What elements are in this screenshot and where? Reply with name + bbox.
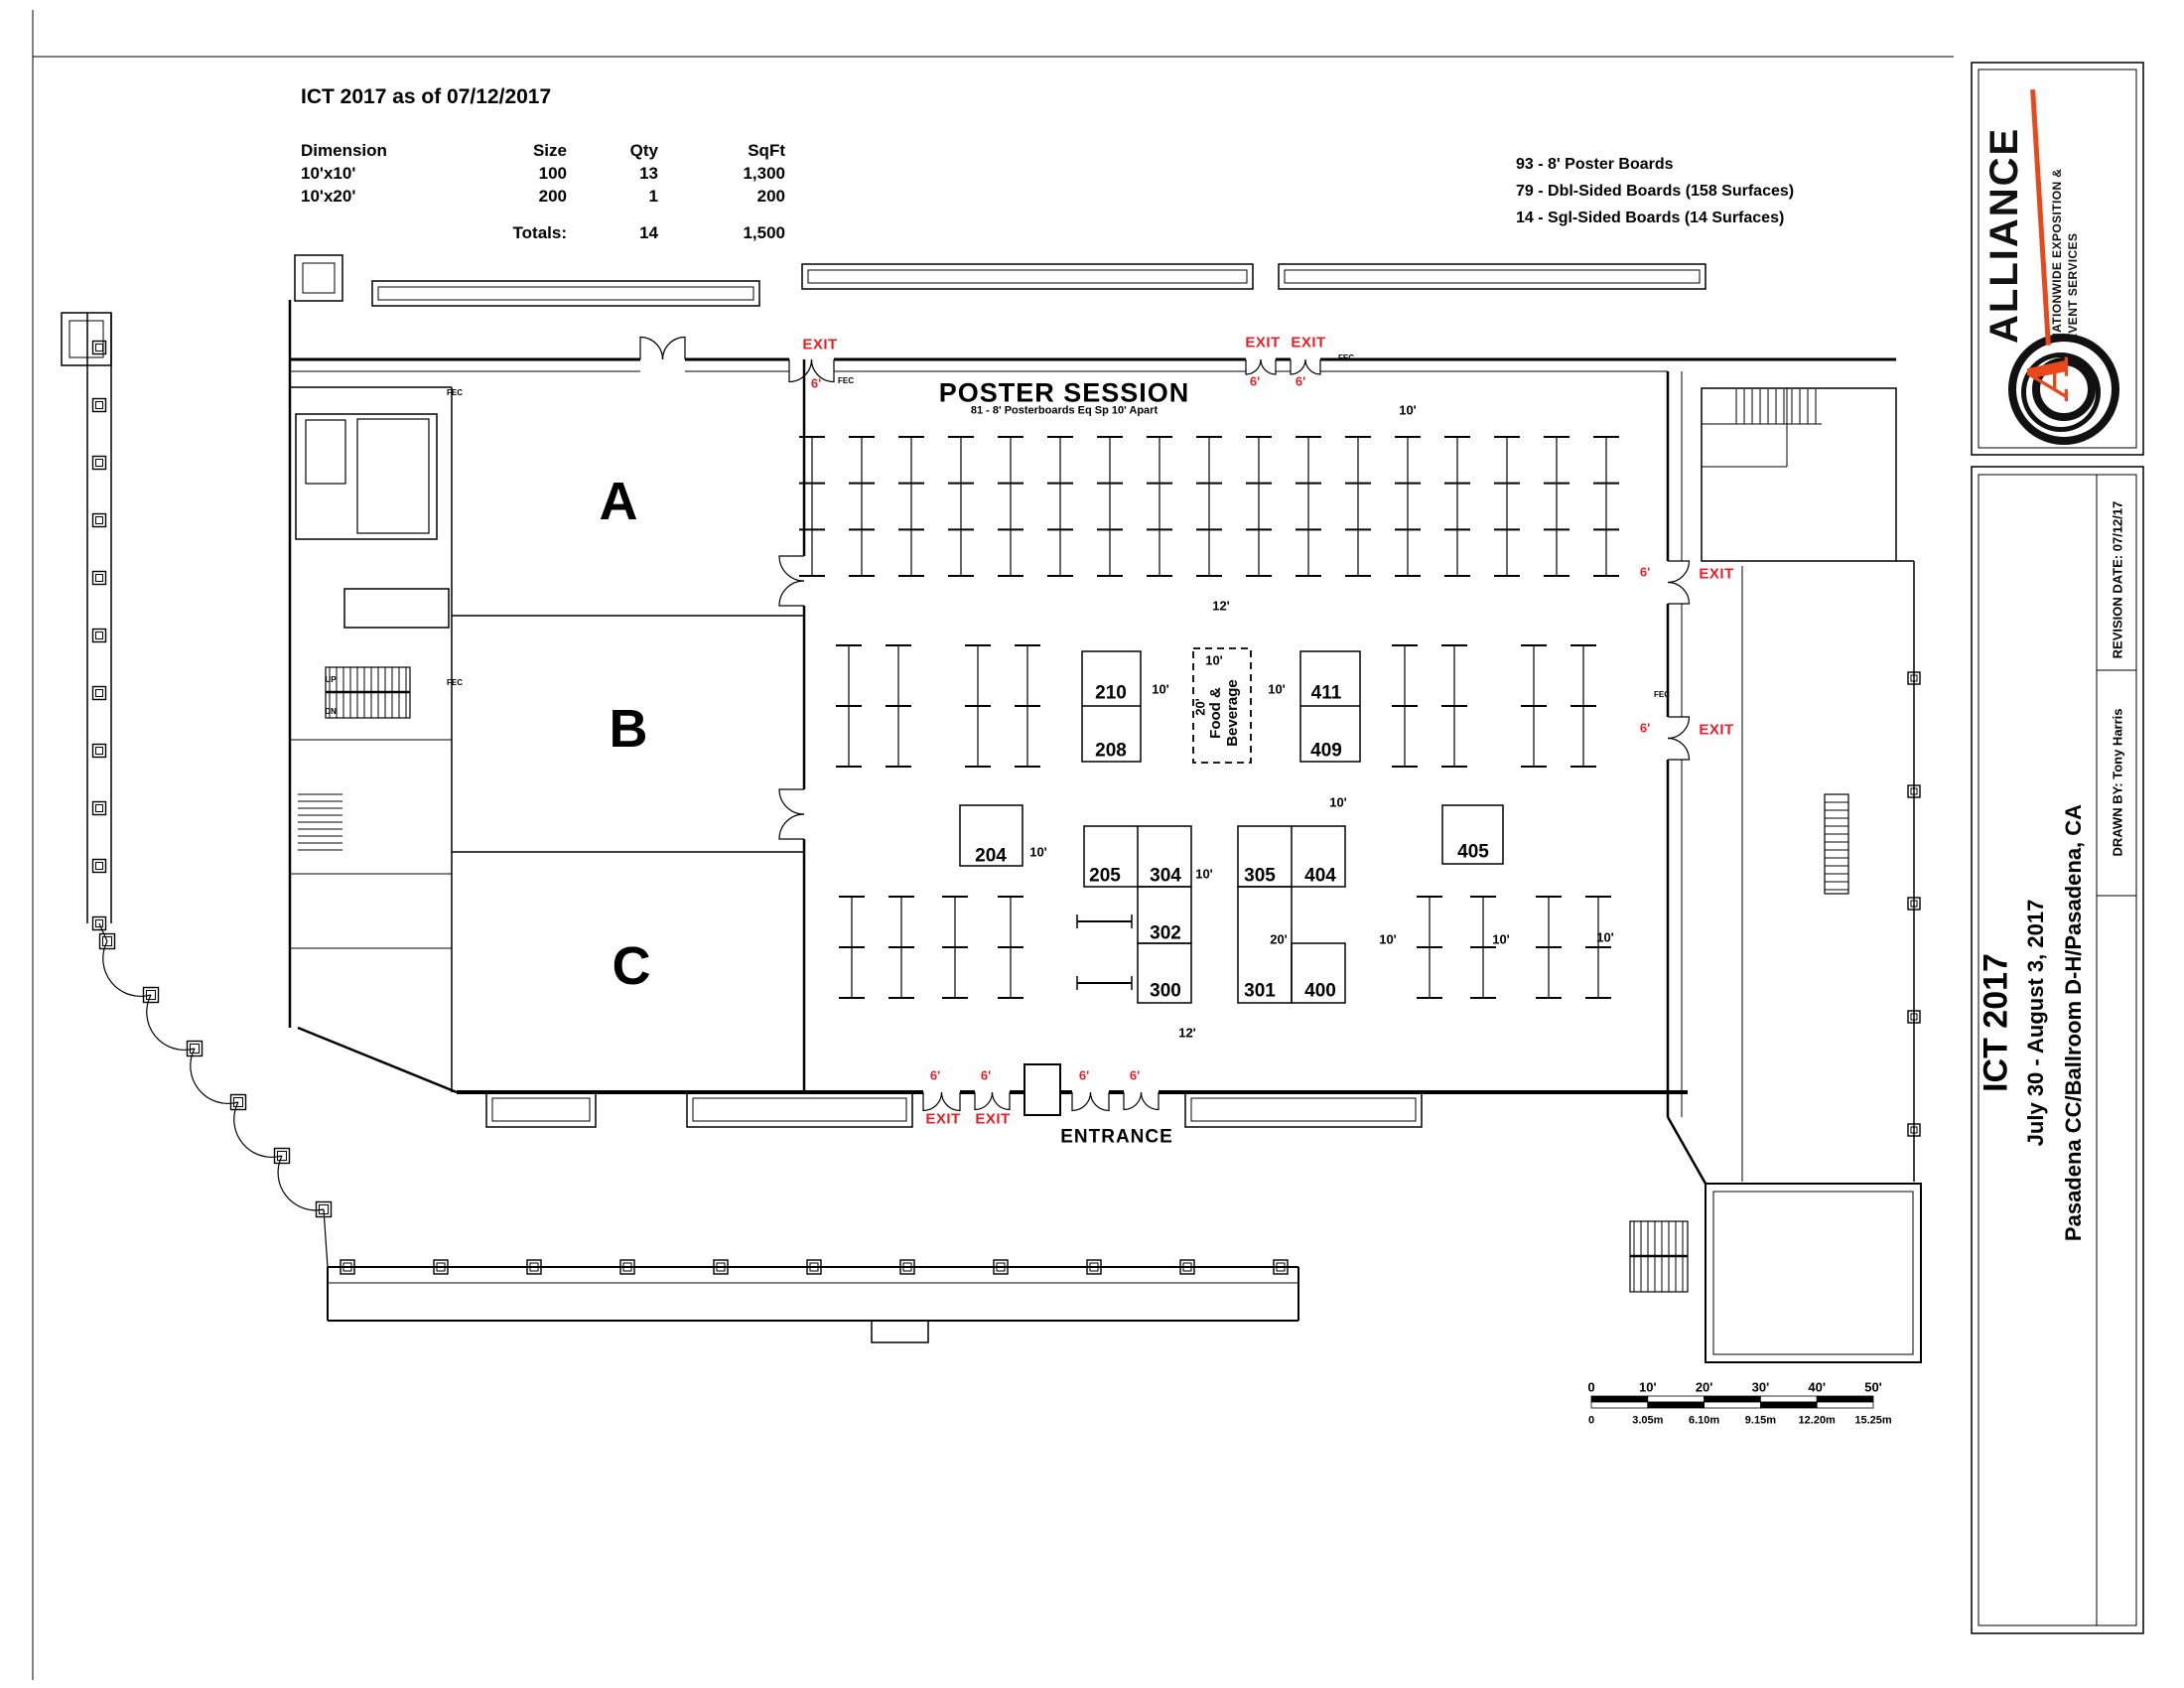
fec-label: FEC (447, 389, 463, 397)
booth-208-label: 208 (1095, 742, 1127, 761)
plan-label-layer: POSTER SESSION81 - 8' Posterboards Eq Sp… (0, 0, 2184, 1688)
booth-404-label: 404 (1304, 867, 1336, 886)
scalebar-feet-label: 10' (1639, 1381, 1657, 1394)
food-beverage-area-label: Food &Beverage (1207, 679, 1242, 747)
stair-up-label: UP (325, 676, 336, 684)
dim-6ft-label: 6' (981, 1069, 991, 1082)
scalebar-feet-label: 50' (1864, 1381, 1882, 1394)
dim-6ft-label: 6' (1250, 375, 1260, 388)
booth-409-label: 409 (1310, 742, 1342, 761)
dim-6ft-label: 6' (1130, 1069, 1140, 1082)
dim-20ft-label: 20' (1194, 698, 1207, 716)
scalebar-meters-label: 3.05m (1632, 1416, 1663, 1427)
dim-12ft-label: 12' (1212, 600, 1230, 613)
booth-302-label: 302 (1150, 924, 1181, 943)
scalebar-meters-label: 9.15m (1745, 1416, 1776, 1427)
dim-6ft-label: 6' (1640, 722, 1650, 735)
fec-label: FEC (1338, 354, 1354, 362)
scalebar-feet-label: 20' (1696, 1381, 1713, 1394)
scalebar-meters-label: 12.20m (1799, 1416, 1836, 1427)
poster-session-title: POSTER SESSION (939, 380, 1190, 407)
poster-session-subtitle: 81 - 8' Posterboards Eq Sp 10' Apart (971, 406, 1158, 417)
floorplan-sheet: { "header": { "plan_status_title": "ICT … (0, 0, 2184, 1688)
booth-300-label: 300 (1150, 982, 1181, 1001)
room-c-label: C (613, 939, 651, 993)
exit-label: EXIT (1699, 567, 1733, 582)
exit-label: EXIT (1245, 336, 1280, 351)
booth-400-label: 400 (1304, 982, 1336, 1001)
dim-12ft-label: 12' (1178, 1027, 1196, 1040)
booth-205-label: 205 (1089, 867, 1121, 886)
dim-10ft-label: 10' (1399, 404, 1417, 417)
room-b-label: B (610, 702, 648, 756)
dim-10ft-label: 10' (1268, 683, 1286, 696)
room-a-label: A (600, 475, 638, 528)
booth-405-label: 405 (1457, 843, 1489, 862)
scalebar-meters-label: 0 (1588, 1416, 1594, 1427)
booth-304-label: 304 (1150, 867, 1181, 886)
dim-10ft-label: 10' (1205, 654, 1223, 667)
entrance-label: ENTRANCE (1060, 1128, 1173, 1147)
dim-6ft-label: 6' (930, 1069, 940, 1082)
exit-label: EXIT (975, 1112, 1010, 1127)
scalebar-feet-label: 30' (1752, 1381, 1770, 1394)
booth-210-label: 210 (1095, 684, 1127, 703)
exit-label: EXIT (925, 1112, 960, 1127)
dim-10ft-label: 10' (1329, 796, 1347, 809)
stair-down-label: DN (325, 708, 337, 716)
scalebar-meters-label: 6.10m (1689, 1416, 1719, 1427)
dim-6ft-label: 6' (1079, 1069, 1089, 1082)
dim-6ft-label: 6' (1296, 375, 1305, 388)
exit-label: EXIT (1699, 723, 1733, 738)
fec-label: FEC (838, 377, 854, 385)
fec-label: FEC (1654, 691, 1670, 699)
dim-10ft-label: 10' (1029, 846, 1047, 859)
booth-305-label: 305 (1244, 867, 1276, 886)
booth-301-label: 301 (1244, 982, 1276, 1001)
scalebar-feet-label: 40' (1808, 1381, 1826, 1394)
dim-10ft-label: 10' (1492, 933, 1510, 946)
booth-204-label: 204 (975, 847, 1007, 866)
exit-label: EXIT (1291, 336, 1325, 351)
dim-20ft-label: 20' (1270, 933, 1288, 946)
scalebar-feet-label: 0 (1587, 1381, 1594, 1394)
dim-10ft-label: 10' (1152, 683, 1169, 696)
dim-10ft-label: 10' (1596, 931, 1614, 944)
dim-6ft-label: 6' (1640, 566, 1650, 579)
fec-label: FEC (447, 679, 463, 687)
exit-label: EXIT (802, 338, 837, 352)
dim-10ft-label: 10' (1195, 868, 1213, 881)
dim-6ft-label: 6' (811, 377, 821, 390)
dim-10ft-label: 10' (1379, 933, 1397, 946)
booth-411-label: 411 (1311, 684, 1342, 703)
scalebar-meters-label: 15.25m (1854, 1416, 1891, 1427)
